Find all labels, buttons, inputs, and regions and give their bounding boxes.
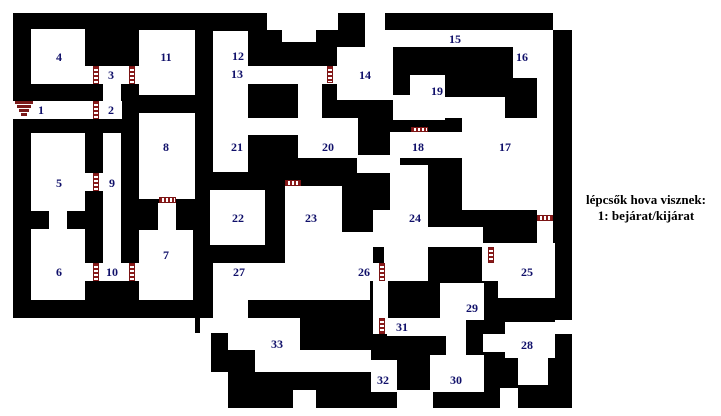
door-marker: [379, 318, 385, 334]
map-floor: [397, 390, 433, 408]
room-label-14: 14: [359, 69, 371, 81]
door-marker: [488, 247, 494, 263]
map-floor: [365, 13, 385, 30]
map-floor: [483, 334, 505, 352]
map-floor: [518, 358, 548, 385]
legend-line-2: 1: bejárat/kijárat: [571, 208, 721, 224]
room-label-7: 7: [163, 249, 169, 261]
door-marker: [93, 66, 99, 84]
map-floor: [139, 230, 193, 300]
legend-line-1: lépcsők hova visznek:: [571, 192, 721, 208]
stairs-icon: [17, 105, 31, 108]
room-label-11: 11: [160, 51, 171, 63]
map-floor: [213, 298, 248, 333]
room-label-26: 26: [358, 266, 370, 278]
door-marker: [285, 180, 301, 186]
map-floor: [103, 133, 121, 281]
room-label-25: 25: [521, 266, 533, 278]
room-label-6: 6: [56, 266, 62, 278]
room-label-22: 22: [232, 212, 244, 224]
room-label-32: 32: [377, 374, 389, 386]
room-label-24: 24: [409, 212, 421, 224]
map-floor: [103, 84, 121, 102]
map-floor: [293, 390, 316, 408]
room-label-1: 1: [38, 104, 44, 116]
map-floor: [195, 333, 211, 372]
room-label-19: 19: [431, 85, 443, 97]
room-label-17: 17: [499, 141, 511, 153]
map-floor: [282, 30, 316, 42]
map-floor: [285, 186, 342, 265]
door-marker: [537, 215, 553, 221]
map-floor: [31, 133, 85, 211]
door-marker: [327, 66, 333, 83]
map-floor: [537, 78, 553, 118]
dungeon-map: lépcsők hova visznek: 1: bejárat/kijárat…: [0, 0, 721, 416]
room-label-3: 3: [108, 69, 114, 81]
room-label-15: 15: [449, 33, 461, 45]
room-label-9: 9: [109, 177, 115, 189]
room-label-4: 4: [56, 51, 62, 63]
room-label-28: 28: [521, 339, 533, 351]
map-floor: [445, 97, 505, 118]
map-floor: [298, 84, 322, 120]
map-floor: [393, 95, 445, 120]
map-floor: [555, 320, 572, 334]
room-label-23: 23: [305, 212, 317, 224]
map-floor: [390, 132, 462, 158]
room-label-8: 8: [163, 141, 169, 153]
stairs-icon: [21, 113, 27, 116]
door-marker: [411, 127, 428, 132]
room-label-27: 27: [233, 266, 245, 278]
room-label-5: 5: [56, 177, 62, 189]
map-floor: [384, 245, 428, 281]
door-marker: [93, 101, 99, 119]
door-marker: [93, 173, 99, 191]
room-label-31: 31: [396, 321, 408, 333]
room-label-13: 13: [231, 68, 243, 80]
map-floor: [255, 350, 300, 372]
door-marker: [93, 263, 99, 281]
map-floor: [428, 227, 483, 247]
map-floor: [139, 113, 195, 199]
map-floor: [446, 320, 466, 356]
map-floor: [390, 165, 428, 247]
stairs-icon: [15, 101, 33, 104]
door-marker: [379, 263, 385, 281]
room-label-30: 30: [450, 374, 462, 386]
room-label-20: 20: [322, 141, 334, 153]
room-label-21: 21: [231, 141, 243, 153]
map-floor: [462, 118, 553, 210]
door-marker: [159, 197, 176, 203]
room-label-16: 16: [516, 51, 528, 63]
room-label-18: 18: [412, 141, 424, 153]
room-label-29: 29: [466, 302, 478, 314]
map-floor: [342, 232, 373, 265]
room-label-10: 10: [106, 266, 118, 278]
stairs-icon: [19, 109, 29, 112]
map-floor: [49, 211, 67, 229]
map-floor: [553, 13, 572, 30]
room-label-33: 33: [271, 338, 283, 350]
room-label-12: 12: [232, 50, 244, 62]
map-floor: [158, 203, 176, 230]
map-floor: [373, 210, 390, 247]
room-label-2: 2: [108, 104, 114, 116]
map-floor: [500, 388, 518, 408]
door-marker: [129, 66, 135, 84]
map-floor: [298, 350, 371, 372]
map-floor: [267, 13, 338, 30]
door-marker: [129, 263, 135, 281]
legend-text: lépcsők hova visznek: 1: bejárat/kijárat: [571, 192, 721, 224]
